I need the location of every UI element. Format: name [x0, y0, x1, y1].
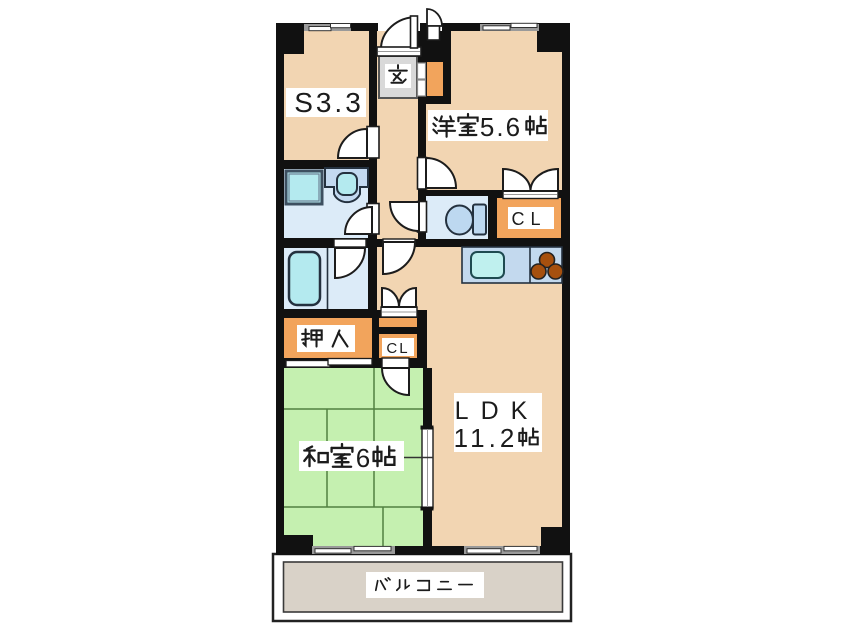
svg-text:CL: CL	[386, 340, 409, 357]
svg-text:6: 6	[356, 443, 370, 473]
svg-text:11.2: 11.2	[454, 423, 519, 453]
svg-text:S3.3: S3.3	[294, 87, 364, 118]
svg-text:5.6: 5.6	[480, 112, 522, 142]
svg-text:LDK: LDK	[455, 397, 540, 425]
svg-text:CL: CL	[511, 209, 546, 229]
